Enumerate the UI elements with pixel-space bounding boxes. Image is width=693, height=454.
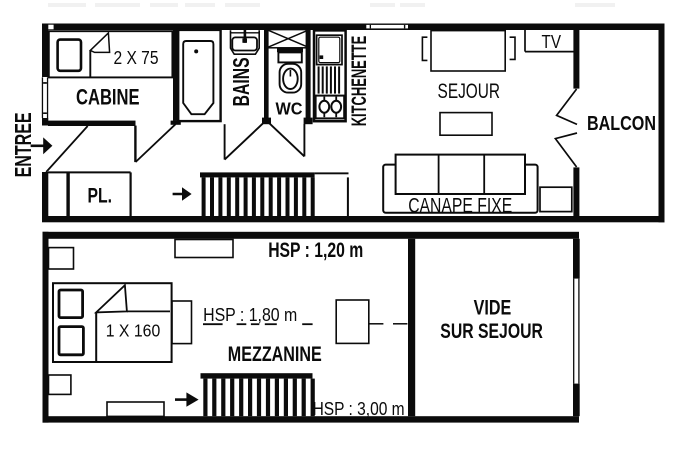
svg-text:2 X 75: 2 X 75 — [114, 48, 159, 68]
svg-text:SEJOUR: SEJOUR — [438, 80, 501, 103]
svg-text:TV: TV — [542, 31, 562, 52]
svg-text:MEZZANINE: MEZZANINE — [228, 343, 322, 366]
svg-text:KITCHENETTE: KITCHENETTE — [347, 36, 371, 127]
svg-text:HSP : 1,20 m: HSP : 1,20 m — [268, 239, 363, 262]
svg-text:CANAPE FIXE: CANAPE FIXE — [408, 194, 512, 218]
svg-text:HSP : 1,80 m: HSP : 1,80 m — [203, 305, 297, 326]
svg-text:SUR SEJOUR: SUR SEJOUR — [440, 320, 543, 343]
svg-text:VIDE: VIDE — [474, 297, 512, 320]
svg-text:BALCON: BALCON — [587, 113, 656, 135]
svg-text:WC: WC — [276, 99, 303, 119]
svg-text:1 X 160: 1 X 160 — [106, 321, 161, 341]
svg-text:HSP : 3,00 m: HSP : 3,00 m — [313, 398, 405, 419]
svg-text:CABINE: CABINE — [76, 84, 140, 109]
svg-text:BAINS: BAINS — [228, 57, 254, 106]
svg-text:PL.: PL. — [88, 183, 113, 207]
